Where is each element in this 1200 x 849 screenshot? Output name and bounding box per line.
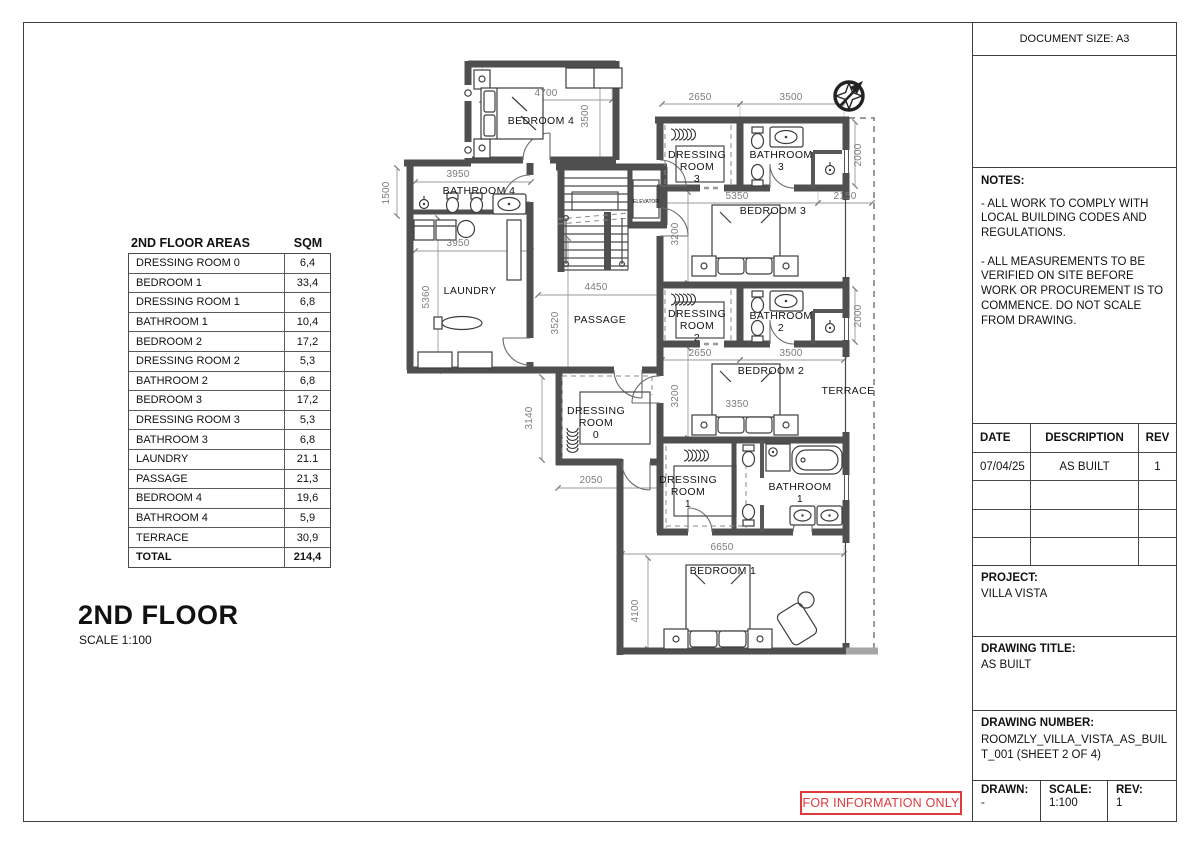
areas-table-header: 2ND FLOOR AREAS SQM — [128, 232, 331, 253]
areas-table-row: BEDROOM 217,2 — [129, 332, 330, 352]
room-label: 2 — [778, 322, 784, 334]
drawing-number-section: DRAWING NUMBER: ROOMZLY_VILLA_VISTA_AS_B… — [973, 711, 1176, 781]
title-block-bottom-row: DRAWN: - SCALE: 1:100 REV: 1 — [973, 781, 1176, 821]
area-sqm: 6,8 — [285, 296, 330, 308]
bedroom1-furniture — [664, 565, 818, 649]
areas-table-row: DRESSING ROOM 16,8 — [129, 293, 330, 313]
revision-cell: AS BUILT — [1031, 453, 1139, 480]
room-label: DRESSING — [567, 405, 625, 417]
dim-label: 2000 — [853, 304, 864, 327]
revision-table: DATE DESCRIPTION REV 07/04/25AS BUILT1 — [973, 424, 1176, 566]
revision-cell — [1031, 510, 1139, 537]
areas-table-row: LAUNDRY21.1 — [129, 450, 330, 470]
areas-table-row: BEDROOM 133,4 — [129, 274, 330, 294]
dim-label: 3350 — [725, 399, 748, 410]
area-name: BEDROOM 1 — [129, 274, 285, 293]
information-stamp: FOR INFORMATION ONLY — [800, 791, 962, 815]
drawing-title-label: DRAWING TITLE: — [981, 643, 1168, 655]
notes-section: NOTES: - ALL WORK TO COMPLY WITH LOCAL B… — [973, 168, 1176, 425]
room-label: ROOM — [579, 417, 613, 429]
area-name: BEDROOM 2 — [129, 332, 285, 351]
dim-label: 5350 — [725, 191, 748, 202]
drawn-label: DRAWN: — [981, 784, 1040, 796]
drawn-value: - — [981, 797, 1040, 809]
revision-cell — [1139, 481, 1176, 508]
area-sqm: 30,9 — [285, 532, 330, 544]
room-label: BEDROOM 1 — [690, 565, 757, 577]
room-label: DRESSING — [668, 308, 726, 320]
areas-table-row: DRESSING ROOM 35,3 — [129, 411, 330, 431]
room-label: ROOM — [680, 320, 714, 332]
area-sqm: 17,2 — [285, 336, 330, 348]
dim-label: 2650 — [688, 92, 711, 103]
room-label: 1 — [685, 498, 691, 510]
room-label: DRESSING — [659, 474, 717, 486]
area-name: LAUNDRY — [129, 450, 285, 469]
areas-table-row: TERRACE30,9 — [129, 528, 330, 548]
areas-table-title: 2ND FLOOR AREAS — [128, 236, 285, 250]
area-sqm: 5,9 — [285, 512, 330, 524]
areas-table-row: BEDROOM 419,6 — [129, 489, 330, 509]
dim-label: 3500 — [580, 104, 591, 127]
scale-field: SCALE: 1:100 — [1041, 781, 1108, 821]
area-name: DRESSING ROOM 2 — [129, 352, 285, 371]
areas-table-row: TOTAL214,4 — [129, 548, 330, 567]
room-label: BEDROOM 2 — [738, 365, 805, 377]
areas-table: 2ND FLOOR AREAS SQM DRESSING ROOM 06,4BE… — [128, 232, 331, 568]
dim-label: 6650 — [710, 542, 733, 553]
areas-table-body: DRESSING ROOM 06,4BEDROOM 133,4DRESSING … — [128, 253, 331, 568]
room-label: BEDROOM 3 — [740, 205, 807, 217]
room-label: 2 — [694, 332, 700, 344]
area-sqm: 33,4 — [285, 277, 330, 289]
dim-label: 4450 — [584, 282, 607, 293]
revision-header-rev: REV — [1139, 424, 1176, 451]
notes-paragraph: - ALL MEASUREMENTS TO BE VERIFIED ON SIT… — [981, 255, 1168, 329]
revision-cell — [1031, 538, 1139, 565]
area-sqm: 6,8 — [285, 434, 330, 446]
revision-header-date: DATE — [973, 424, 1031, 451]
area-name: DRESSING ROOM 0 — [129, 254, 285, 273]
dim-label: 2050 — [579, 475, 602, 486]
area-sqm: 214,4 — [285, 551, 330, 563]
area-sqm: 21.1 — [285, 453, 330, 465]
area-sqm: 21,3 — [285, 473, 330, 485]
area-sqm: 5,3 — [285, 355, 330, 367]
project-value: VILLA VISTA — [981, 588, 1168, 600]
area-sqm: 5,3 — [285, 414, 330, 426]
area-name: BATHROOM 2 — [129, 372, 285, 391]
area-name: PASSAGE — [129, 470, 285, 489]
area-name: DRESSING ROOM 1 — [129, 293, 285, 312]
room-label: PASSAGE — [574, 314, 626, 326]
revision-header-description: DESCRIPTION — [1031, 424, 1139, 451]
revision-cell — [973, 538, 1031, 565]
revision-row — [973, 510, 1176, 538]
area-name: DRESSING ROOM 3 — [129, 411, 285, 430]
dim-label: 3950 — [446, 238, 469, 249]
revision-cell: 1 — [1139, 453, 1176, 480]
scale-label: SCALE: — [1049, 784, 1107, 796]
dim-label: 3500 — [779, 348, 802, 359]
room-label: LAUNDRY — [444, 285, 497, 297]
drawing-title-section: DRAWING TITLE: AS BUILT — [973, 637, 1176, 711]
area-sqm: 17,2 — [285, 394, 330, 406]
area-name: BEDROOM 4 — [129, 489, 285, 508]
dim-label: 2150 — [833, 191, 856, 202]
areas-table-row: BATHROOM 26,8 — [129, 372, 330, 392]
project-section: PROJECT: VILLA VISTA — [973, 566, 1176, 637]
dim-label: 3520 — [550, 311, 561, 334]
area-name: BATHROOM 3 — [129, 430, 285, 449]
revision-cell — [1139, 538, 1176, 565]
dim-label: 5360 — [421, 285, 432, 308]
room-label: BEDROOM 4 — [508, 115, 575, 127]
revision-cell — [973, 481, 1031, 508]
notes-paragraph: - ALL WORK TO COMPLY WITH LOCAL BUILDING… — [981, 197, 1168, 241]
revision-cell — [973, 510, 1031, 537]
room-label: BATHROOM — [768, 481, 831, 493]
room-label: 0 — [593, 429, 599, 441]
area-name: BEDROOM 3 — [129, 391, 285, 410]
project-label: PROJECT: — [981, 572, 1168, 584]
dim-label: 3200 — [670, 384, 681, 407]
rev-field: REV: 1 — [1108, 781, 1176, 821]
areas-table-row: BATHROOM 36,8 — [129, 430, 330, 450]
rev-label: REV: — [1116, 784, 1176, 796]
floor-title: 2ND FLOOR — [78, 600, 239, 631]
revision-cell: 07/04/25 — [973, 453, 1031, 480]
areas-table-row: BEDROOM 317,2 — [129, 391, 330, 411]
room-label: DRESSING — [668, 149, 726, 161]
scale-value: 1:100 — [1049, 797, 1107, 809]
dim-label: 2000 — [853, 143, 864, 166]
revision-row — [973, 538, 1176, 565]
area-sqm: 6,4 — [285, 257, 330, 269]
area-sqm: 19,6 — [285, 492, 330, 504]
room-label: ROOM — [671, 486, 705, 498]
dim-label: 2650 — [688, 348, 711, 359]
areas-table-row: BATHROOM 45,9 — [129, 509, 330, 529]
areas-table-row: DRESSING ROOM 25,3 — [129, 352, 330, 372]
drawn-field: DRAWN: - — [973, 781, 1041, 821]
title-block: DOCUMENT SIZE: A3 NOTES: - ALL WORK TO C… — [972, 22, 1177, 822]
dim-label: 3140 — [524, 406, 535, 429]
room-label: 3 — [778, 161, 784, 173]
stairs — [558, 170, 630, 270]
dim-label: 1500 — [381, 181, 392, 204]
areas-table-row: DRESSING ROOM 06,4 — [129, 254, 330, 274]
drawing-number-value: ROOMZLY_VILLA_VISTA_AS_BUILT_001 (SHEET … — [981, 733, 1168, 762]
compass-icon — [835, 81, 863, 110]
dim-label: 4700 — [534, 88, 557, 99]
room-label: TERRACE — [822, 385, 875, 397]
revision-row — [973, 481, 1176, 509]
areas-table-row: PASSAGE21,3 — [129, 470, 330, 490]
area-name: BATHROOM 4 — [129, 509, 285, 528]
title-block-empty-box — [973, 56, 1176, 168]
room-label: ROOM — [680, 161, 714, 173]
dim-label: 3950 — [446, 169, 469, 180]
dim-label: 3200 — [670, 222, 681, 245]
dim-label: 3500 — [779, 92, 802, 103]
area-sqm: 6,8 — [285, 375, 330, 387]
revision-row: 07/04/25AS BUILT1 — [973, 453, 1176, 481]
drawing-title-value: AS BUILT — [981, 659, 1168, 671]
room-label: 1 — [797, 493, 803, 505]
areas-table-row: BATHROOM 110,4 — [129, 313, 330, 333]
room-label: 3 — [694, 173, 700, 185]
dim-label: 4100 — [630, 599, 641, 622]
room-label: BATHROOM — [749, 149, 812, 161]
room-label: ELEVATOR — [633, 199, 659, 205]
area-name: TERRACE — [129, 528, 285, 547]
area-sqm: 10,4 — [285, 316, 330, 328]
document-size: DOCUMENT SIZE: A3 — [973, 23, 1176, 56]
rev-value: 1 — [1116, 797, 1176, 809]
room-label: BATHROOM 4 — [443, 185, 516, 197]
drawing-number-label: DRAWING NUMBER: — [981, 717, 1168, 729]
area-name: BATHROOM 1 — [129, 313, 285, 332]
revision-cell — [1031, 481, 1139, 508]
room-label: BATHROOM — [749, 310, 812, 322]
floor-scale: SCALE 1:100 — [79, 633, 152, 647]
areas-table-unit: SQM — [285, 236, 331, 250]
area-name: TOTAL — [129, 548, 285, 567]
revision-cell — [1139, 510, 1176, 537]
notes-label: NOTES: — [981, 174, 1168, 189]
revision-header-row: DATE DESCRIPTION REV — [973, 424, 1176, 452]
